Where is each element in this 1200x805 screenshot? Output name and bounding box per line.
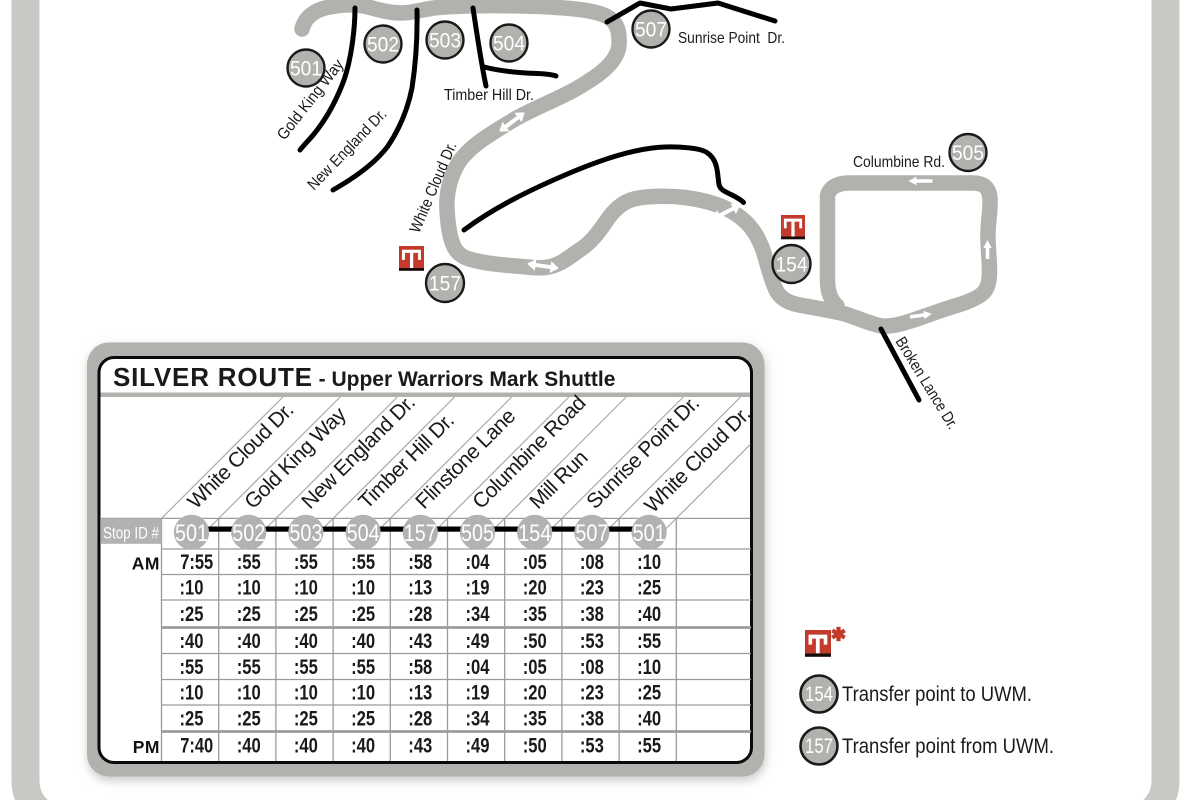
- svg-text:501: 501: [175, 520, 208, 547]
- svg-text::50: :50: [523, 630, 547, 653]
- svg-text::25: :25: [637, 682, 661, 705]
- svg-text::10: :10: [237, 577, 261, 600]
- svg-text:507: 507: [635, 19, 667, 42]
- svg-text::19: :19: [466, 577, 490, 600]
- svg-text::28: :28: [408, 708, 432, 731]
- svg-text::10: :10: [180, 577, 204, 600]
- svg-text::55: :55: [351, 656, 375, 679]
- svg-text::55: :55: [351, 551, 375, 574]
- svg-text:Sunrise Point Dr.: Sunrise Point Dr.: [678, 30, 785, 47]
- svg-text::55: :55: [637, 735, 661, 758]
- svg-text::28: :28: [408, 603, 432, 626]
- svg-text::55: :55: [637, 630, 661, 653]
- svg-text::25: :25: [637, 577, 661, 600]
- svg-text::08: :08: [580, 551, 604, 574]
- svg-text:504: 504: [347, 520, 380, 547]
- svg-text::53: :53: [580, 735, 604, 758]
- svg-text::38: :38: [580, 708, 604, 731]
- svg-text::53: :53: [580, 630, 604, 653]
- svg-text::58: :58: [408, 551, 432, 574]
- svg-text::40: :40: [351, 630, 375, 653]
- svg-text:502: 502: [232, 520, 265, 547]
- svg-text::58: :58: [408, 656, 432, 679]
- svg-text::38: :38: [580, 603, 604, 626]
- svg-text:502: 502: [367, 34, 399, 57]
- svg-text:Timber Hill Dr.: Timber Hill Dr.: [444, 87, 534, 104]
- svg-text:AM: AM: [132, 554, 160, 574]
- svg-text:Transfer point to UWM.: Transfer point to UWM.: [842, 683, 1032, 706]
- svg-text::50: :50: [523, 735, 547, 758]
- svg-text::49: :49: [466, 735, 490, 758]
- svg-text::05: :05: [523, 656, 547, 679]
- svg-text::40: :40: [237, 630, 261, 653]
- svg-text::25: :25: [180, 708, 204, 731]
- svg-text:Columbine Rd.: Columbine Rd.: [853, 154, 945, 171]
- svg-text::34: :34: [466, 708, 490, 731]
- svg-text::25: :25: [294, 708, 318, 731]
- svg-text:157: 157: [805, 735, 833, 758]
- svg-text::40: :40: [637, 603, 661, 626]
- svg-text::25: :25: [237, 603, 261, 626]
- svg-text::55: :55: [237, 656, 261, 679]
- svg-text::40: :40: [180, 630, 204, 653]
- svg-text::10: :10: [637, 551, 661, 574]
- svg-text::04: :04: [466, 656, 490, 679]
- svg-text::10: :10: [237, 682, 261, 705]
- svg-text::20: :20: [523, 682, 547, 705]
- svg-text::04: :04: [466, 551, 490, 574]
- svg-text:7:55: 7:55: [180, 551, 213, 574]
- svg-text::25: :25: [237, 708, 261, 731]
- svg-text::10: :10: [351, 577, 375, 600]
- svg-text::25: :25: [351, 708, 375, 731]
- svg-text::35: :35: [523, 708, 547, 731]
- svg-text::25: :25: [180, 603, 204, 626]
- svg-text::20: :20: [523, 577, 547, 600]
- svg-text::05: :05: [523, 551, 547, 574]
- svg-text:157: 157: [404, 520, 437, 547]
- svg-text::35: :35: [523, 603, 547, 626]
- svg-text:7:40: 7:40: [180, 735, 213, 758]
- svg-text:505: 505: [952, 142, 984, 165]
- svg-text:501: 501: [633, 520, 666, 547]
- svg-text:Stop ID #: Stop ID #: [103, 524, 159, 543]
- svg-text:505: 505: [461, 520, 494, 547]
- svg-text::25: :25: [294, 603, 318, 626]
- svg-text::43: :43: [408, 735, 432, 758]
- svg-text::40: :40: [351, 735, 375, 758]
- svg-text::40: :40: [237, 735, 261, 758]
- svg-text::40: :40: [294, 630, 318, 653]
- svg-text::40: :40: [637, 708, 661, 731]
- svg-text::19: :19: [466, 682, 490, 705]
- svg-text::25: :25: [351, 603, 375, 626]
- svg-text::13: :13: [408, 577, 432, 600]
- svg-text::10: :10: [294, 577, 318, 600]
- svg-text::55: :55: [180, 656, 204, 679]
- svg-text::10: :10: [294, 682, 318, 705]
- svg-text:PM: PM: [133, 737, 160, 757]
- svg-text:504: 504: [493, 33, 525, 56]
- svg-text::34: :34: [466, 603, 490, 626]
- svg-text::49: :49: [466, 630, 490, 653]
- svg-text:503: 503: [289, 520, 322, 547]
- svg-text::40: :40: [294, 735, 318, 758]
- svg-text::55: :55: [294, 656, 318, 679]
- svg-text:157: 157: [429, 273, 461, 296]
- svg-text::10: :10: [180, 682, 204, 705]
- svg-text::08: :08: [580, 656, 604, 679]
- svg-text::23: :23: [580, 682, 604, 705]
- svg-text::43: :43: [408, 630, 432, 653]
- svg-text:503: 503: [429, 30, 461, 53]
- svg-text:507: 507: [575, 520, 608, 547]
- svg-text:Transfer point from UWM.: Transfer point from UWM.: [842, 735, 1054, 758]
- svg-text::23: :23: [580, 577, 604, 600]
- svg-text:154: 154: [776, 254, 808, 277]
- svg-text::13: :13: [408, 682, 432, 705]
- svg-text:154: 154: [518, 520, 551, 547]
- svg-text::10: :10: [351, 682, 375, 705]
- svg-text::55: :55: [294, 551, 318, 574]
- svg-text::10: :10: [637, 656, 661, 679]
- svg-text::55: :55: [237, 551, 261, 574]
- svg-text:154: 154: [805, 683, 833, 706]
